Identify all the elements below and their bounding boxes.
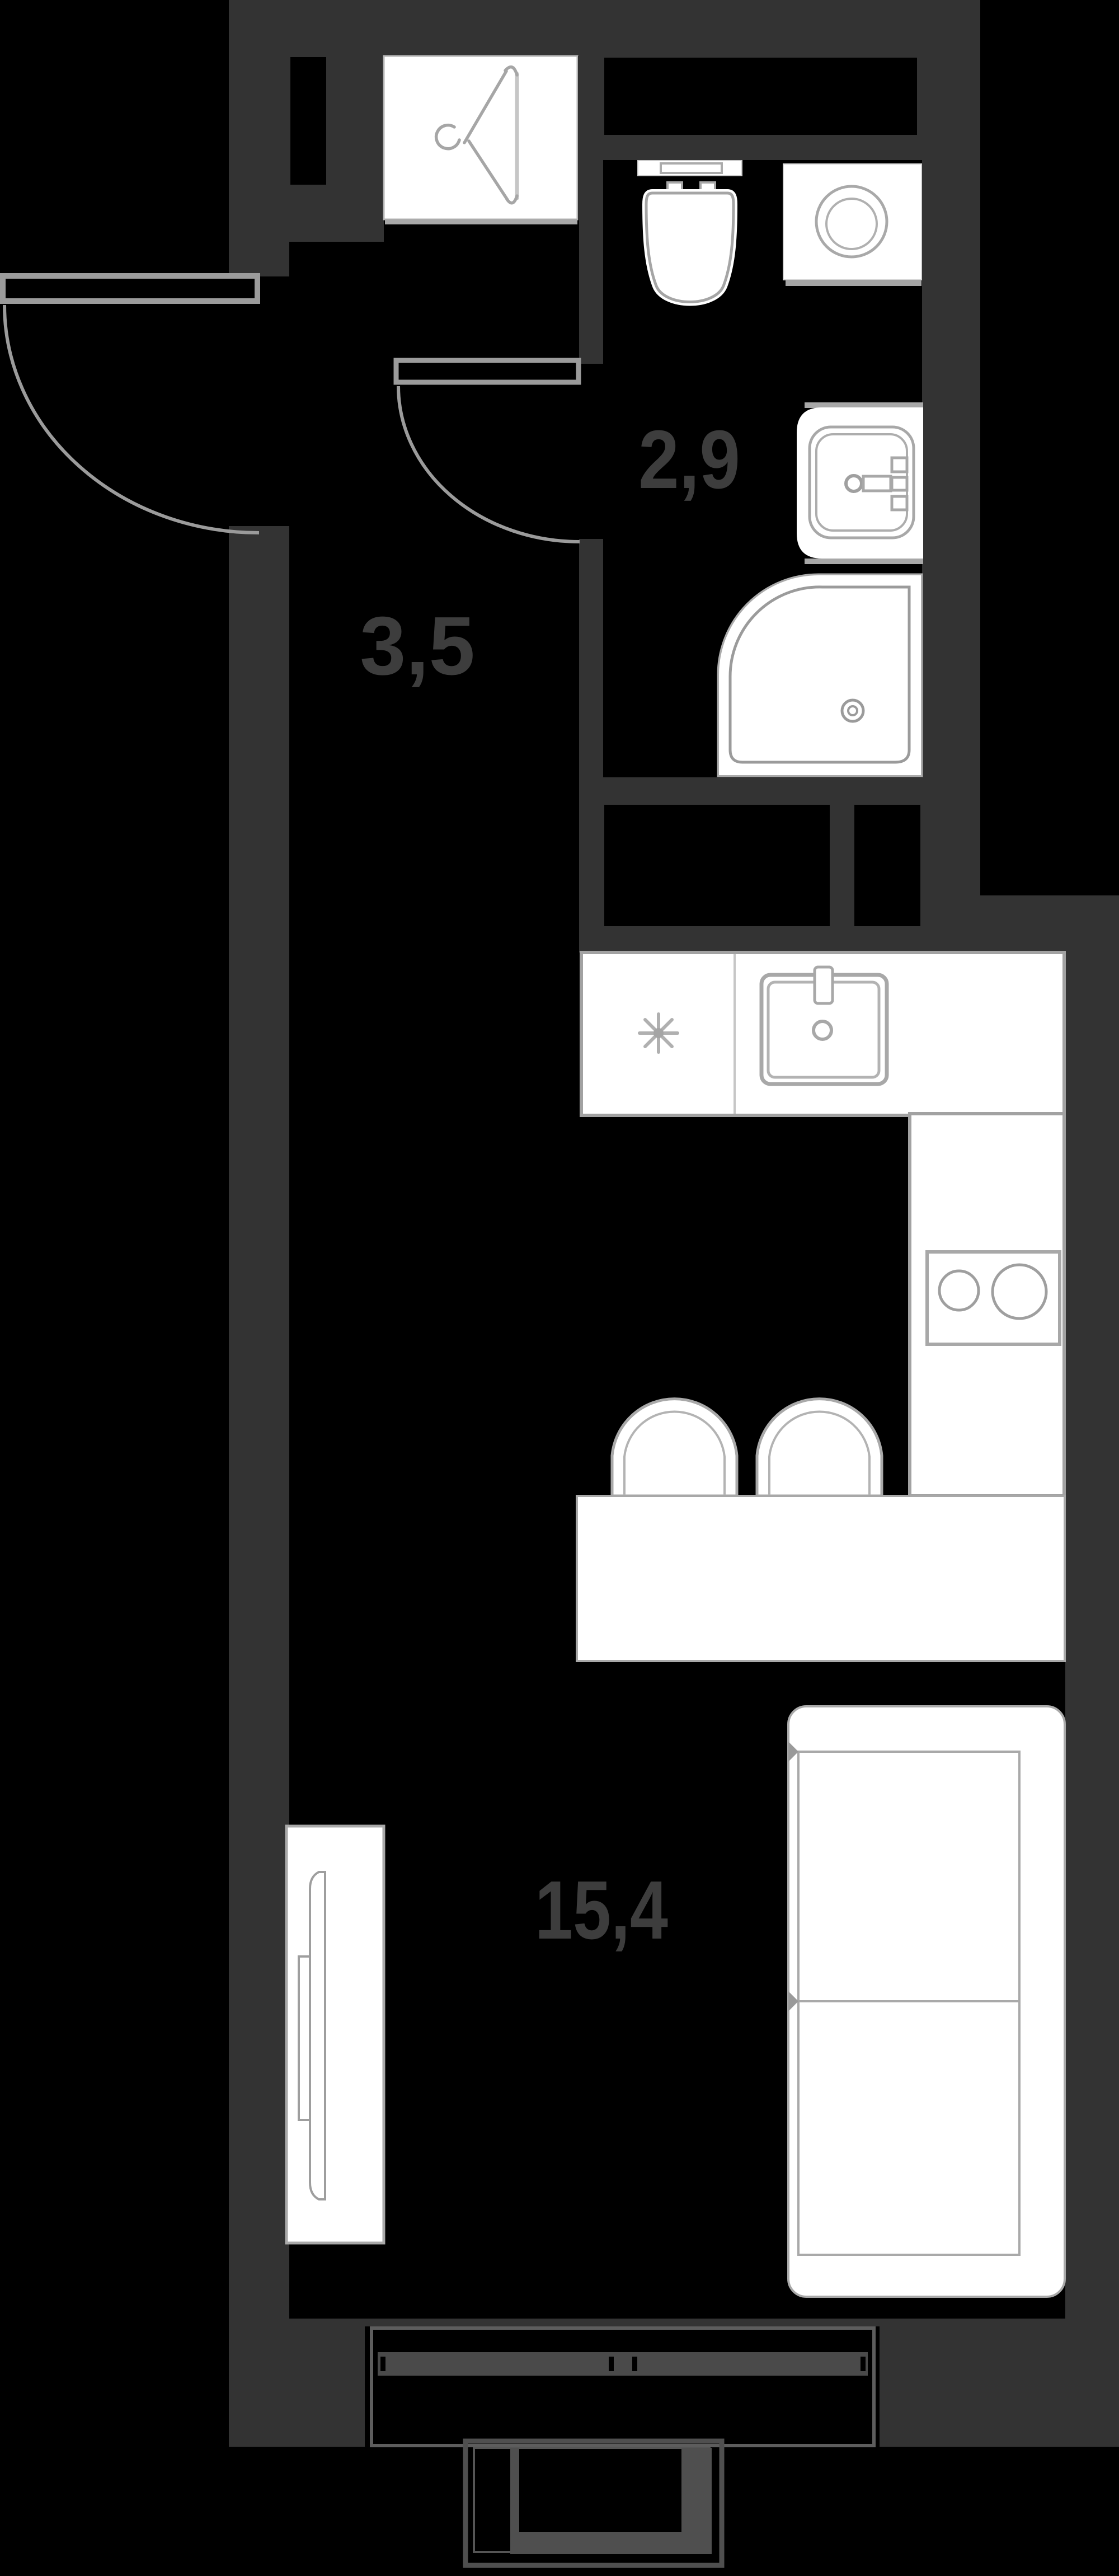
svg-text:2,9: 2,9 — [638, 414, 740, 506]
svg-text:15,4: 15,4 — [535, 1864, 668, 1956]
svg-text:3,5: 3,5 — [360, 600, 475, 692]
